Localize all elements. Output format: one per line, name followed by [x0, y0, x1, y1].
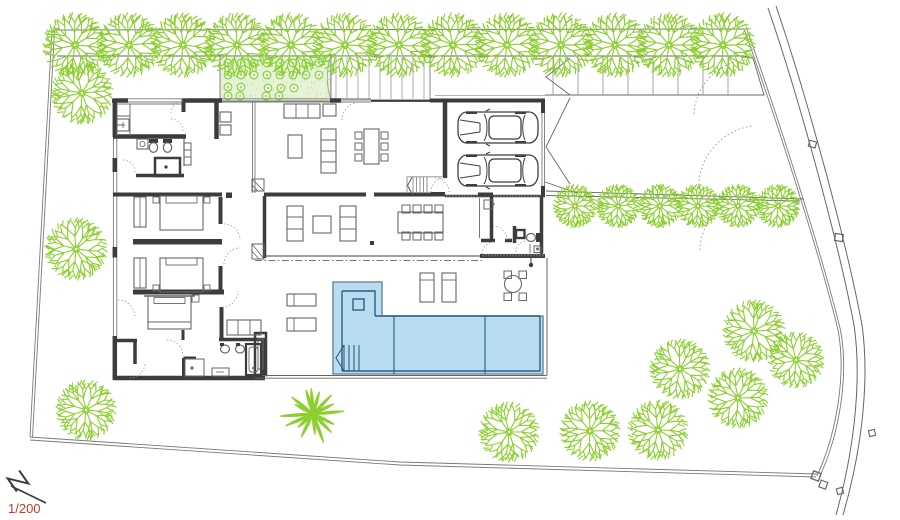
svg-text:1/200: 1/200	[8, 501, 41, 515]
